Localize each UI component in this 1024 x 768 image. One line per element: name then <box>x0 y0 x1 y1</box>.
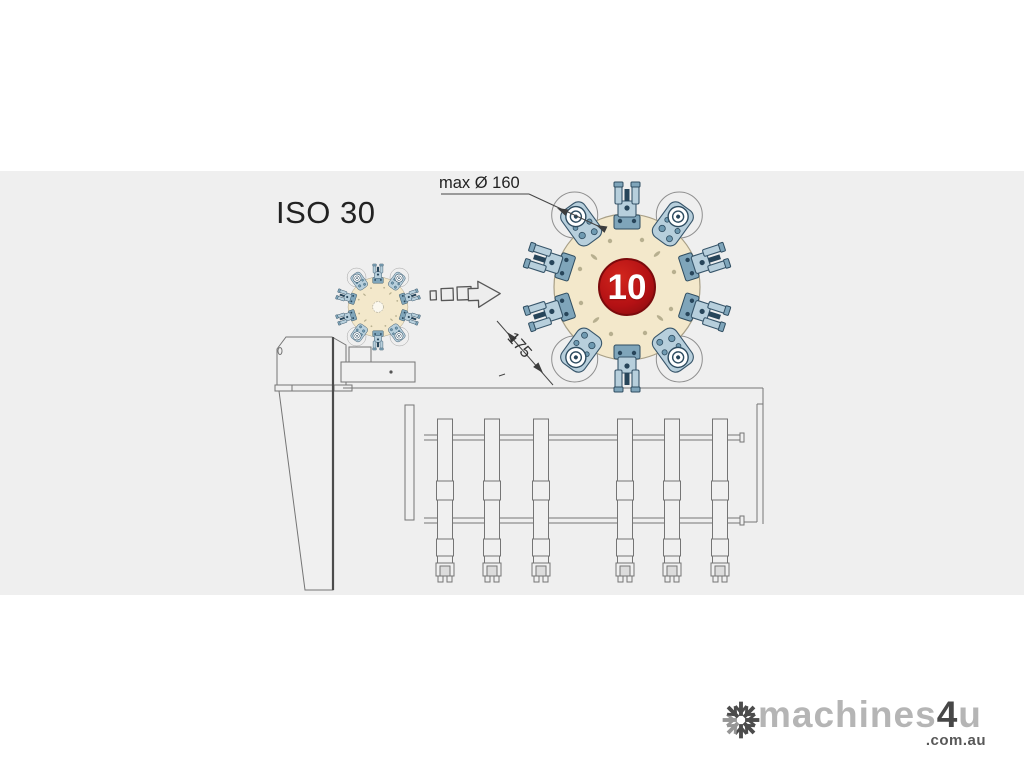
max-tool-diameter-label: max Ø 160 <box>439 174 520 193</box>
turret-diagram-small <box>335 264 420 350</box>
bed-post <box>405 405 414 520</box>
tool-changer-technical-drawing <box>0 0 1024 768</box>
boring-spindles <box>436 419 729 582</box>
magnify-arrow-icon <box>430 281 501 309</box>
logo-wordmark: machines4u <box>758 696 982 734</box>
snowflake-logo-icon <box>722 699 760 741</box>
machine-leg <box>279 391 333 590</box>
slide-canvas: ISO 30 max Ø 160 175 10 <box>0 0 1024 768</box>
turret-bracket-upper <box>349 347 371 362</box>
logo-word-4: 4 <box>937 694 959 735</box>
spindle-head-block <box>277 337 346 385</box>
machine-side-view <box>275 337 763 590</box>
tool-count-badge: 10 <box>597 265 657 310</box>
logo-tld: .com.au <box>758 732 986 749</box>
turret-bracket-lower <box>341 362 415 382</box>
tool-rack-rails <box>424 433 744 525</box>
spindle-taper-label: ISO 30 <box>276 195 376 231</box>
logo-word-u: u <box>958 694 982 735</box>
logo-word-machines: machines <box>758 694 937 735</box>
machines4u-logo: machines4u .com.au <box>720 696 1000 756</box>
